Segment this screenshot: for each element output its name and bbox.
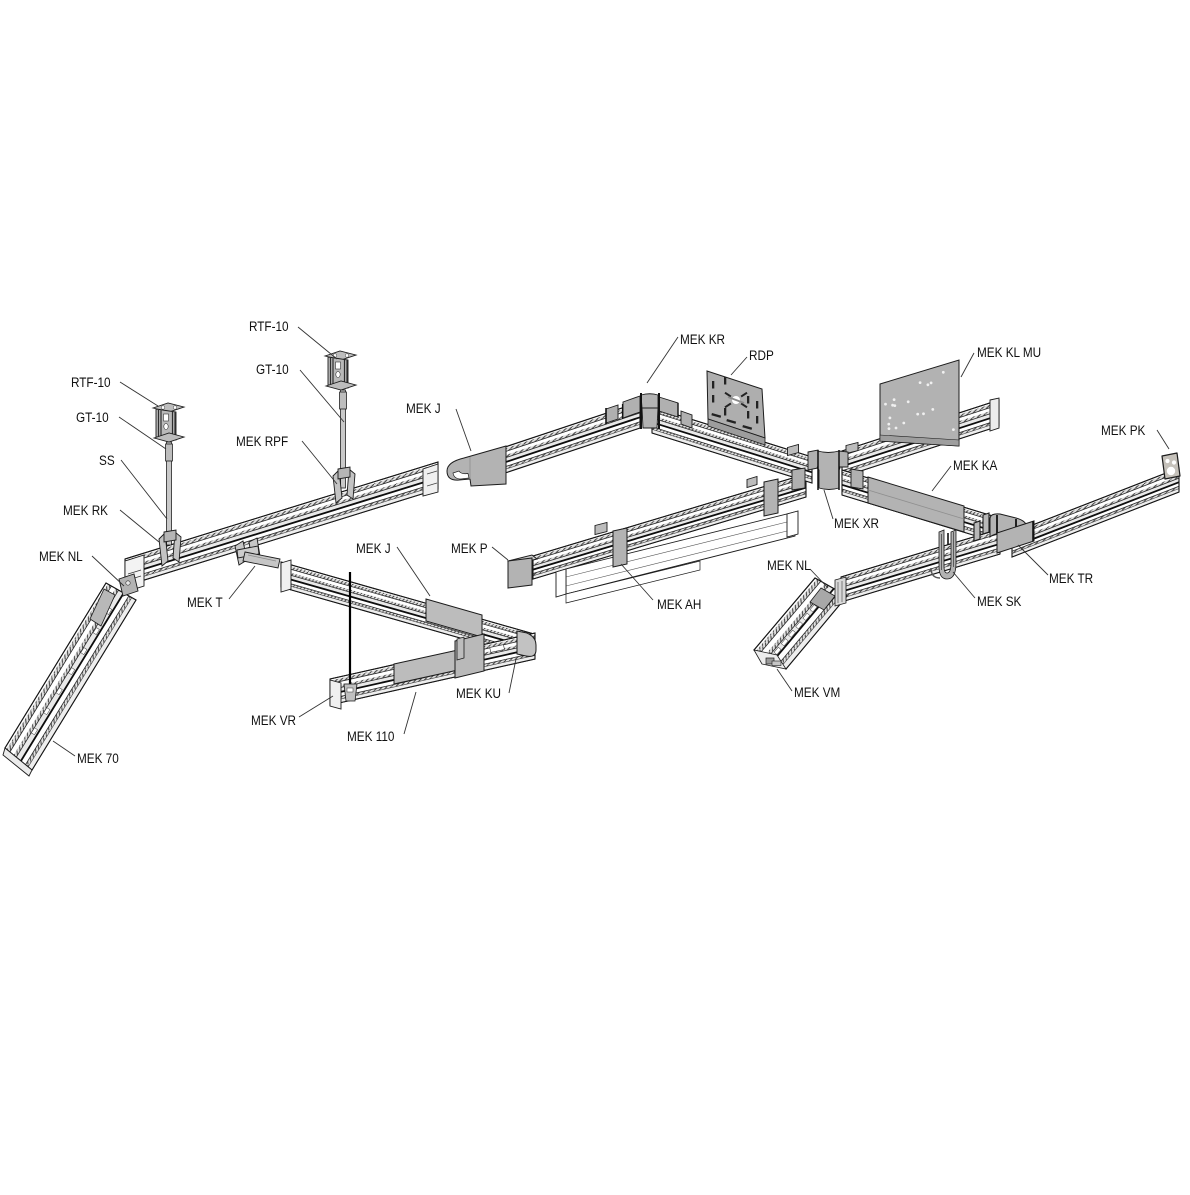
svg-text:MEK KA: MEK KA xyxy=(953,457,998,473)
svg-text:RTF-10: RTF-10 xyxy=(249,318,289,334)
svg-text:MEK AH: MEK AH xyxy=(657,596,701,612)
svg-text:RDP: RDP xyxy=(749,347,774,363)
svg-text:MEK J: MEK J xyxy=(406,400,441,416)
svg-text:MEK P: MEK P xyxy=(451,540,488,556)
svg-text:MEK KU: MEK KU xyxy=(456,685,501,701)
svg-text:SS: SS xyxy=(99,452,115,468)
svg-text:GT-10: GT-10 xyxy=(76,409,109,425)
svg-text:GT-10: GT-10 xyxy=(256,361,289,377)
svg-text:MEK T: MEK T xyxy=(187,594,223,610)
svg-text:MEK VM: MEK VM xyxy=(794,684,840,700)
svg-text:MEK KL MU: MEK KL MU xyxy=(977,344,1041,360)
svg-text:MEK SK: MEK SK xyxy=(977,593,1022,609)
svg-text:MEK NL: MEK NL xyxy=(767,557,811,573)
svg-text:MEK RK: MEK RK xyxy=(63,502,108,518)
svg-text:MEK KR: MEK KR xyxy=(680,331,725,347)
svg-text:MEK PK: MEK PK xyxy=(1101,422,1146,438)
svg-text:MEK NL: MEK NL xyxy=(39,548,83,564)
svg-text:MEK VR: MEK VR xyxy=(251,712,296,728)
svg-text:MEK XR: MEK XR xyxy=(834,515,879,531)
svg-text:MEK 110: MEK 110 xyxy=(347,728,394,744)
svg-text:MEK TR: MEK TR xyxy=(1049,570,1093,586)
svg-text:MEK RPF: MEK RPF xyxy=(236,433,288,449)
svg-text:MEK 70: MEK 70 xyxy=(77,750,119,766)
svg-text:MEK J: MEK J xyxy=(356,540,391,556)
svg-text:RTF-10: RTF-10 xyxy=(71,374,111,390)
